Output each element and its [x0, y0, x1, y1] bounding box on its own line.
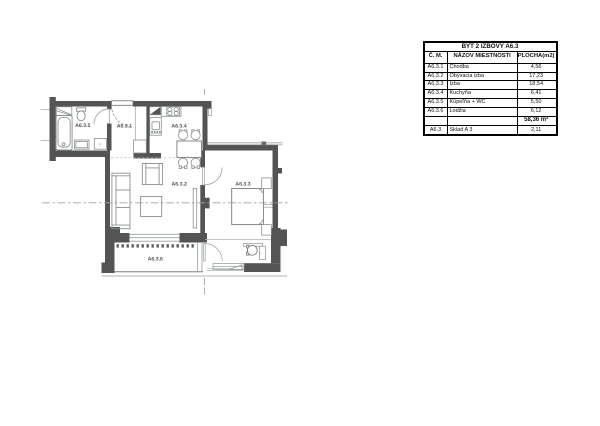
svg-text:A6.3.6: A6.3.6: [148, 256, 163, 262]
svg-text:A6.3.3: A6.3.3: [235, 182, 250, 188]
svg-text:A6.3.4: A6.3.4: [171, 123, 186, 129]
svg-text:A6.3.5: A6.3.5: [75, 123, 90, 129]
svg-text:A6.3.2: A6.3.2: [172, 181, 187, 187]
svg-text:A6.3.1: A6.3.1: [117, 124, 132, 130]
